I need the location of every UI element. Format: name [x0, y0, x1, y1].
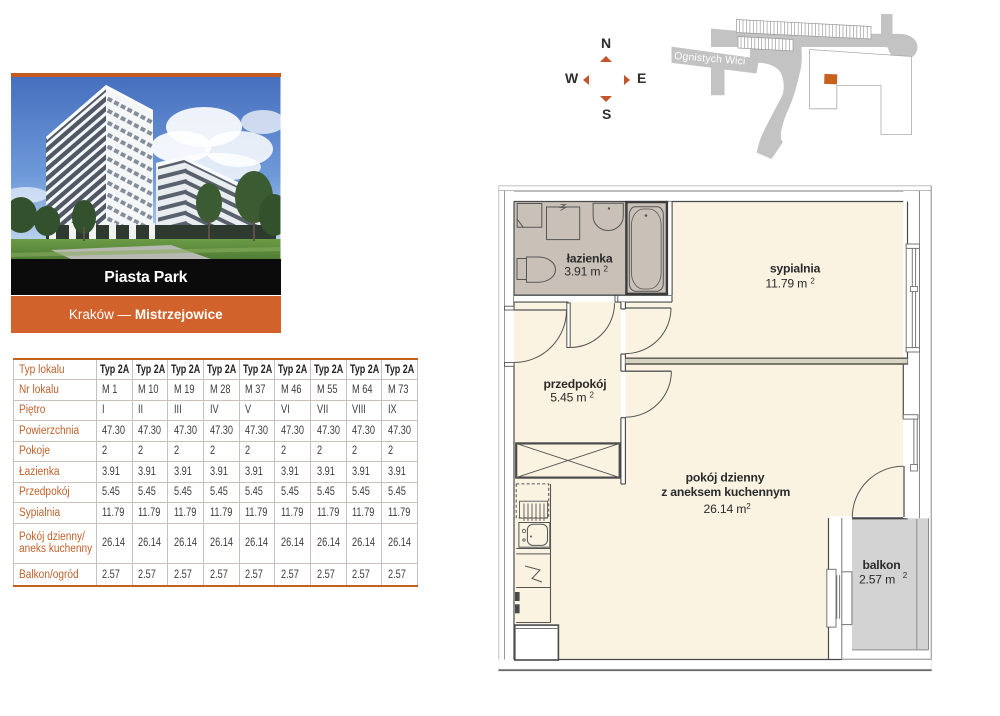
svg-text:3.91 m 2: 3.91 m 2: [564, 265, 608, 279]
svg-text:łazienka: łazienka: [567, 252, 613, 266]
svg-text:2.57 m: 2.57 m: [859, 573, 895, 587]
svg-text:przedpokój: przedpokój: [543, 377, 606, 391]
svg-text:sypialnia: sypialnia: [770, 262, 821, 276]
svg-text:balkon: balkon: [862, 558, 900, 572]
svg-text:5.45 m 2: 5.45 m 2: [550, 391, 594, 405]
svg-text:z aneksem kuchennym: z aneksem kuchennym: [661, 485, 790, 499]
svg-text:26.14 m2: 26.14 m2: [704, 502, 752, 516]
svg-text:2: 2: [903, 571, 908, 580]
svg-text:pokój dzienny: pokój dzienny: [686, 471, 765, 485]
svg-text:11.79 m 2: 11.79 m 2: [765, 277, 815, 291]
